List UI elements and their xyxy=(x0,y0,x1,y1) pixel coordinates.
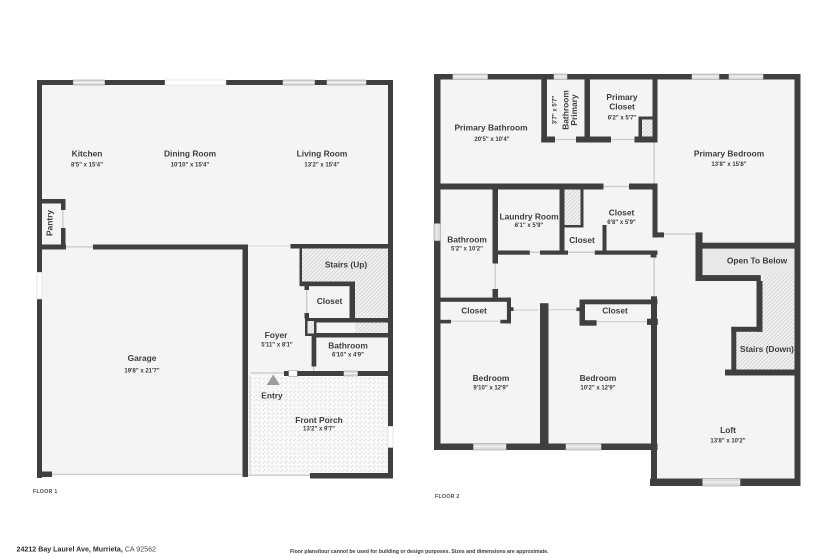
svg-text:Primary: Primary xyxy=(606,92,638,102)
svg-text:Closet: Closet xyxy=(461,306,487,316)
svg-text:Open To Below: Open To Below xyxy=(727,256,788,266)
svg-text:13'8" x 15'8": 13'8" x 15'8" xyxy=(711,162,746,168)
svg-text:Bathroom: Bathroom xyxy=(328,341,368,351)
svg-text:Kitchen: Kitchen xyxy=(72,149,103,159)
svg-text:FLOOR 1: FLOOR 1 xyxy=(33,489,58,495)
svg-text:Pantry: Pantry xyxy=(45,210,55,236)
svg-text:19'8" x 21'7": 19'8" x 21'7" xyxy=(124,368,159,374)
svg-text:6'10" x 4'9": 6'10" x 4'9" xyxy=(332,353,364,359)
svg-text:Closet: Closet xyxy=(609,102,635,112)
svg-text:Garage: Garage xyxy=(128,353,157,363)
svg-text:Loft: Loft xyxy=(720,425,736,435)
svg-text:6'2" x 5'7": 6'2" x 5'7" xyxy=(608,116,637,122)
svg-text:Stairs (Down): Stairs (Down) xyxy=(740,344,794,354)
svg-text:9'10" x 12'9": 9'10" x 12'9" xyxy=(473,386,508,392)
svg-text:6'8" x 5'9": 6'8" x 5'9" xyxy=(607,220,636,226)
svg-text:Closet: Closet xyxy=(602,306,628,316)
svg-text:Bedroom: Bedroom xyxy=(473,373,510,383)
svg-text:FLOOR 2: FLOOR 2 xyxy=(435,494,460,500)
svg-text:Closet: Closet xyxy=(569,235,595,245)
svg-text:Stairs (Up): Stairs (Up) xyxy=(325,260,368,270)
svg-text:Entry: Entry xyxy=(261,391,283,401)
svg-text:Living Room: Living Room xyxy=(297,149,348,159)
svg-text:10'10" x 15'4": 10'10" x 15'4" xyxy=(171,163,210,169)
svg-text:Floor plans/tour cannot be use: Floor plans/tour cannot be used for buil… xyxy=(290,549,549,555)
svg-text:Dining Room: Dining Room xyxy=(164,149,216,159)
svg-text:Bathroom: Bathroom xyxy=(447,235,487,245)
svg-text:Primary Bathroom: Primary Bathroom xyxy=(454,123,527,133)
svg-text:13'2" x 15'4": 13'2" x 15'4" xyxy=(304,163,339,169)
svg-text:13'8" x 10'2": 13'8" x 10'2" xyxy=(710,439,745,445)
svg-text:5'2" x 10'2": 5'2" x 10'2" xyxy=(451,247,483,253)
svg-text:Primary: Primary xyxy=(569,94,579,126)
svg-text:6'1" x 5'9": 6'1" x 5'9" xyxy=(515,223,544,229)
svg-text:3'7" x 5'7": 3'7" x 5'7" xyxy=(553,96,559,125)
svg-text:Primary Bedroom: Primary Bedroom xyxy=(694,149,764,159)
svg-text:Laundry Room: Laundry Room xyxy=(499,212,558,222)
svg-text:20'5" x 10'4": 20'5" x 10'4" xyxy=(474,137,509,143)
svg-text:Foyer: Foyer xyxy=(265,330,289,340)
svg-text:Closet: Closet xyxy=(317,296,343,306)
svg-text:24212 Bay Laurel Ave, Murrieta: 24212 Bay Laurel Ave, Murrieta, CA 92562 xyxy=(17,546,157,554)
svg-text:5'11" x 8'1": 5'11" x 8'1" xyxy=(261,343,293,349)
svg-text:8'5" x 15'4": 8'5" x 15'4" xyxy=(71,163,103,169)
svg-text:13'2" x 9'7": 13'2" x 9'7" xyxy=(303,427,335,433)
svg-text:Bathroom: Bathroom xyxy=(561,90,571,130)
svg-text:Front Porch: Front Porch xyxy=(295,415,342,425)
svg-text:Bedroom: Bedroom xyxy=(580,373,617,383)
svg-text:10'2" x 12'9": 10'2" x 12'9" xyxy=(580,386,615,392)
svg-text:Closet: Closet xyxy=(609,208,635,218)
